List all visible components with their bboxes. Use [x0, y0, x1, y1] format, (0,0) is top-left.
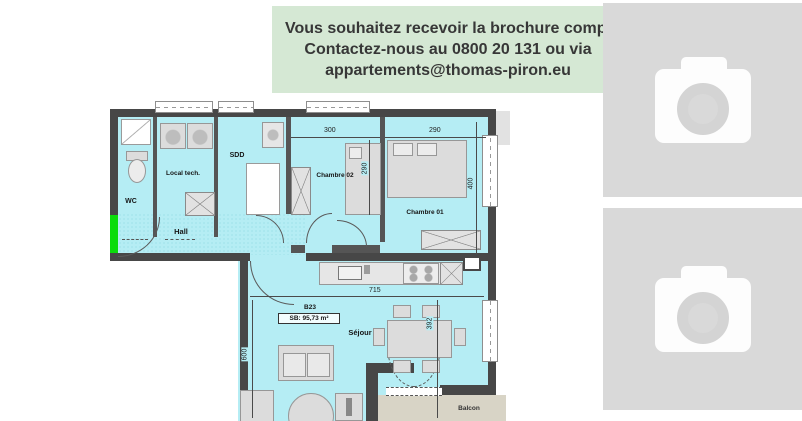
sdd-shower — [246, 163, 280, 215]
chambre02-pillow — [349, 147, 362, 159]
shaft-box — [463, 256, 481, 271]
tv-screen — [346, 398, 352, 416]
neighbor-unit-fragment — [496, 111, 510, 145]
dim-line-ch02-width — [291, 137, 380, 138]
label-sdd: SDD — [222, 152, 252, 159]
chambre01-wardrobe — [421, 230, 481, 250]
chair-right — [454, 328, 466, 346]
page: Vous souhaitez recevoir la brochure comp… — [0, 0, 802, 421]
floorplan-image[interactable]: 300 290 290 400 715 392 600 WC Local tec… — [110, 95, 510, 421]
dim-line-sejour-left — [252, 300, 253, 418]
kitchen-faucet — [364, 265, 370, 274]
dim-ch02-width: 300 — [323, 127, 337, 134]
label-chambre02: Chambre 02 — [300, 173, 370, 180]
armchair — [240, 390, 274, 421]
label-surface: SB: 95,73 m² — [278, 313, 340, 324]
wc-shower-box — [121, 119, 151, 145]
banner-line-1: Vous souhaitez recevoir la brochure comp… — [285, 18, 611, 39]
dim-ch01-width: 290 — [428, 127, 442, 134]
label-unit-code: B23 — [282, 305, 338, 312]
banner-line-3: appartements@thomas-piron.eu — [325, 60, 571, 81]
sofa-cushion-2 — [307, 353, 330, 377]
label-local-tech: Local tech. — [154, 171, 212, 178]
washer-2 — [187, 123, 213, 149]
window-top-localtech — [155, 101, 213, 113]
dim-line-ch01-width — [385, 137, 486, 138]
chambre01-pillow-2 — [417, 143, 437, 156]
camera-lens — [677, 292, 729, 344]
dim-ch01-depth: 400 — [467, 177, 474, 191]
window-top-chambre — [306, 101, 370, 113]
window-top-sdd — [218, 101, 254, 113]
brochure-banner: Vous souhaitez recevoir la brochure comp… — [272, 6, 624, 93]
dim-sejour-left: 600 — [241, 348, 248, 362]
localtech-door-dash — [165, 239, 195, 240]
hall-closet — [185, 192, 215, 216]
window-chambre01 — [482, 135, 498, 207]
photo-placeholder-1[interactable] — [603, 3, 802, 197]
photo-placeholder-2[interactable] — [603, 208, 802, 410]
banner-line-2: Contactez-nous au 0800 20 131 ou via — [304, 39, 591, 60]
kitchen-stove — [403, 263, 439, 284]
wall-ch02-bottom-a — [291, 245, 305, 253]
camera-icon — [655, 266, 751, 352]
entry-door-marker — [110, 215, 118, 253]
label-wc: WC — [118, 198, 144, 205]
wall-sejour-bottom — [440, 385, 496, 395]
wall-localtech-right — [214, 117, 218, 237]
dining-table — [387, 320, 452, 358]
label-sejour: Séjour — [335, 329, 385, 337]
camera-lens — [677, 83, 729, 135]
dim-sejour-depth: 392 — [426, 317, 433, 331]
washer-1 — [160, 123, 186, 149]
kitchen-sink — [338, 266, 362, 280]
sdd-washbasin — [262, 122, 284, 148]
kitchen-fridge — [440, 262, 463, 285]
chair-bottom-1 — [393, 360, 411, 373]
dim-line-sejour-width — [250, 296, 484, 297]
wc-door-dash — [122, 239, 148, 240]
label-chambre01: Chambre 01 — [390, 210, 460, 217]
sofa-cushion-1 — [283, 353, 306, 377]
window-sejour — [482, 300, 498, 362]
dim-sejour-width: 715 — [368, 287, 382, 294]
label-hall: Hall — [166, 228, 196, 236]
toilet-bowl — [128, 159, 146, 183]
camera-icon — [655, 57, 751, 143]
balcony-door-sill — [386, 387, 442, 396]
label-balcon: Balcon — [448, 406, 490, 413]
chambre01-pillow-1 — [393, 143, 413, 156]
dim-line-sejour-depth — [437, 300, 438, 418]
dim-line-ch01-depth — [476, 122, 477, 255]
chair-top-1 — [393, 305, 411, 318]
